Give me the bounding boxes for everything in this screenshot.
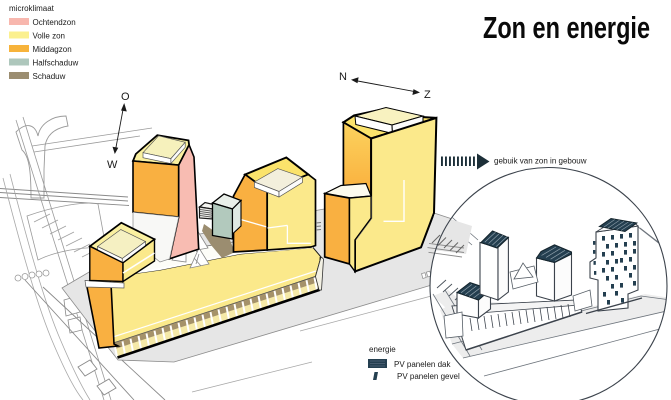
svg-text:Schaduw: Schaduw — [33, 72, 66, 81]
svg-text:Z: Z — [424, 89, 431, 101]
svg-text:PV panelen dak: PV panelen dak — [394, 360, 451, 369]
svg-text:gebuik van zon in gebouw: gebuik van zon in gebouw — [494, 157, 587, 166]
svg-text:Zon en energie: Zon en energie — [483, 10, 650, 45]
svg-text:Volle zon: Volle zon — [33, 32, 65, 41]
svg-text:Middagzon: Middagzon — [33, 45, 72, 54]
svg-text:Halfschaduw: Halfschaduw — [33, 59, 79, 68]
svg-text:energie: energie — [369, 345, 396, 354]
svg-text:O: O — [121, 91, 130, 103]
svg-text:N: N — [339, 71, 347, 83]
svg-text:microklimaat: microklimaat — [9, 4, 55, 13]
svg-text:W: W — [107, 159, 118, 171]
svg-text:PV panelen gevel: PV panelen gevel — [397, 372, 460, 381]
svg-text:Ochtendzon: Ochtendzon — [33, 18, 76, 27]
